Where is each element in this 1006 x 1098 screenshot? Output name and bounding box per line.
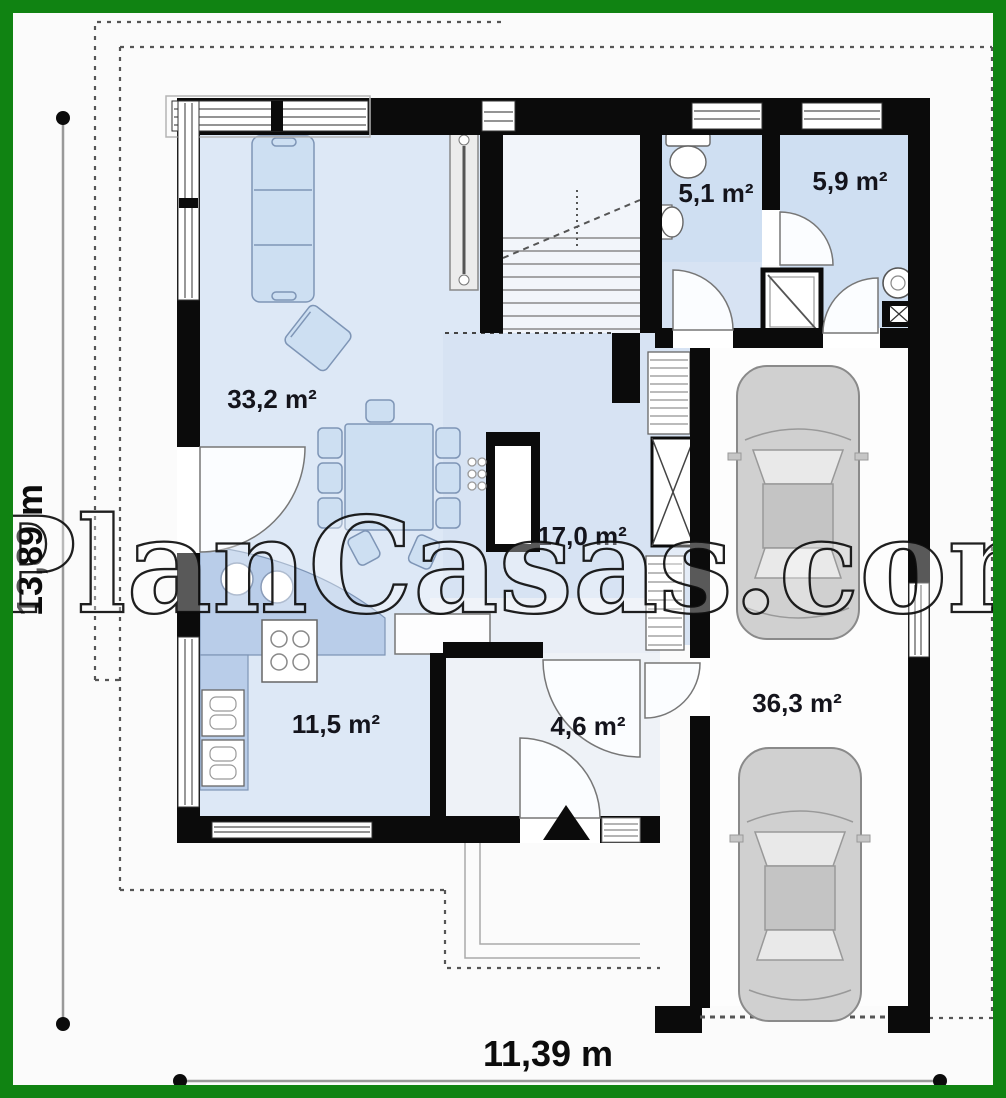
room-label-kitchen: 11,5 m² <box>292 709 381 739</box>
car-mirror-icon <box>730 835 743 842</box>
car-mirror-icon <box>855 453 868 460</box>
wall-stair-west <box>480 120 503 333</box>
window-mullion <box>179 198 198 208</box>
car-windshield <box>753 450 843 484</box>
toilet-icon <box>666 133 710 178</box>
floor-plan-image: 33,2 m² 5,1 m² 5,9 m² 17,0 m² 11,5 m² 4,… <box>0 0 1006 1098</box>
shower-icon <box>763 270 821 334</box>
car-mirror-icon <box>728 453 741 460</box>
wall-stair-east <box>640 120 662 333</box>
kitchen-appliance <box>202 690 244 736</box>
window-wc <box>692 103 762 129</box>
wall-understair <box>612 333 640 403</box>
window-kitchen-south <box>212 822 372 838</box>
room-label-bathroom: 5,9 m² <box>812 166 887 196</box>
floor-plan-svg: 33,2 m² 5,1 m² 5,9 m² 17,0 m² 11,5 m² 4,… <box>0 0 1006 1098</box>
window-bathroom <box>802 103 882 129</box>
radiator-unit <box>450 130 478 290</box>
wall-wc-bath <box>762 120 780 212</box>
window-stairwell <box>482 101 515 131</box>
window-kitchen-west <box>178 637 199 807</box>
room-label-vestibule: 4,6 m² <box>550 711 625 741</box>
watermark-text: PlanCasas.com <box>0 489 1006 644</box>
stair-floor <box>500 120 640 333</box>
entrance-steps <box>602 818 640 842</box>
window-living-north <box>172 101 368 131</box>
hall-shelving <box>648 352 690 434</box>
room-label-wc: 5,1 m² <box>678 178 753 208</box>
sofa-armrest-icon <box>272 138 296 146</box>
car <box>730 748 870 1021</box>
car-windshield <box>755 832 845 866</box>
sofa-armrest-icon <box>272 292 296 300</box>
wall-vestibule-north <box>443 642 543 658</box>
chair <box>366 400 394 422</box>
room-label-living: 33,2 m² <box>227 384 317 414</box>
sofa <box>252 136 314 302</box>
window-living-west <box>178 101 199 300</box>
room-label-garage: 36,3 m² <box>752 688 842 718</box>
car-mirror-icon <box>857 835 870 842</box>
wall-garage-south <box>888 1006 930 1033</box>
washbasin-icon <box>660 205 683 239</box>
dimension-label-width: 11,39 m <box>483 1033 613 1074</box>
wall-vestibule-west <box>430 653 446 818</box>
window-mullion <box>271 101 283 131</box>
chair <box>318 428 342 458</box>
chair <box>436 428 460 458</box>
kitchen-appliance <box>202 740 244 786</box>
car-rear-window <box>757 930 843 960</box>
wall-garage-south <box>655 1006 702 1033</box>
car-roof <box>765 866 835 930</box>
